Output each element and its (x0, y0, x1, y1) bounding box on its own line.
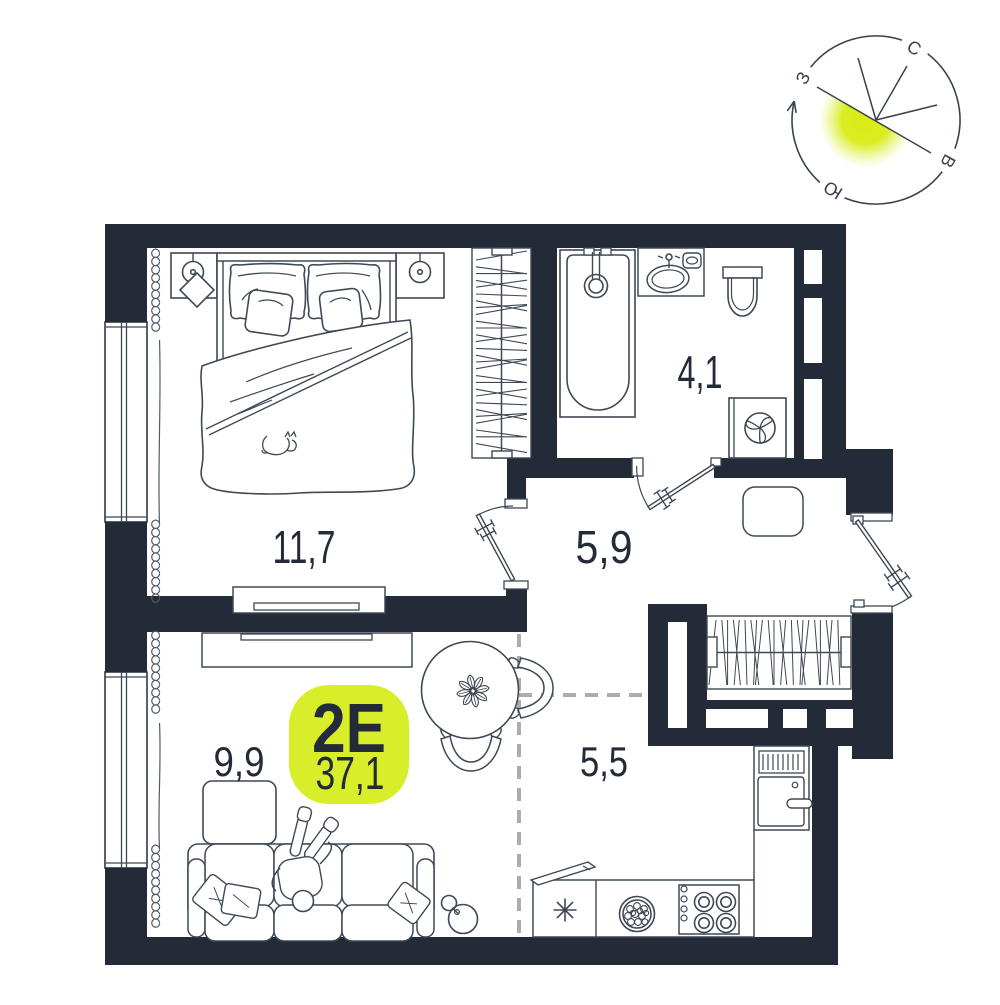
svg-text:37,1: 37,1 (316, 747, 385, 799)
svg-text:5,5: 5,5 (580, 738, 628, 785)
svg-text:11,7: 11,7 (273, 521, 336, 573)
svg-text:9,9: 9,9 (214, 738, 265, 785)
svg-text:4,1: 4,1 (678, 346, 723, 398)
svg-text:5,9: 5,9 (576, 521, 633, 573)
